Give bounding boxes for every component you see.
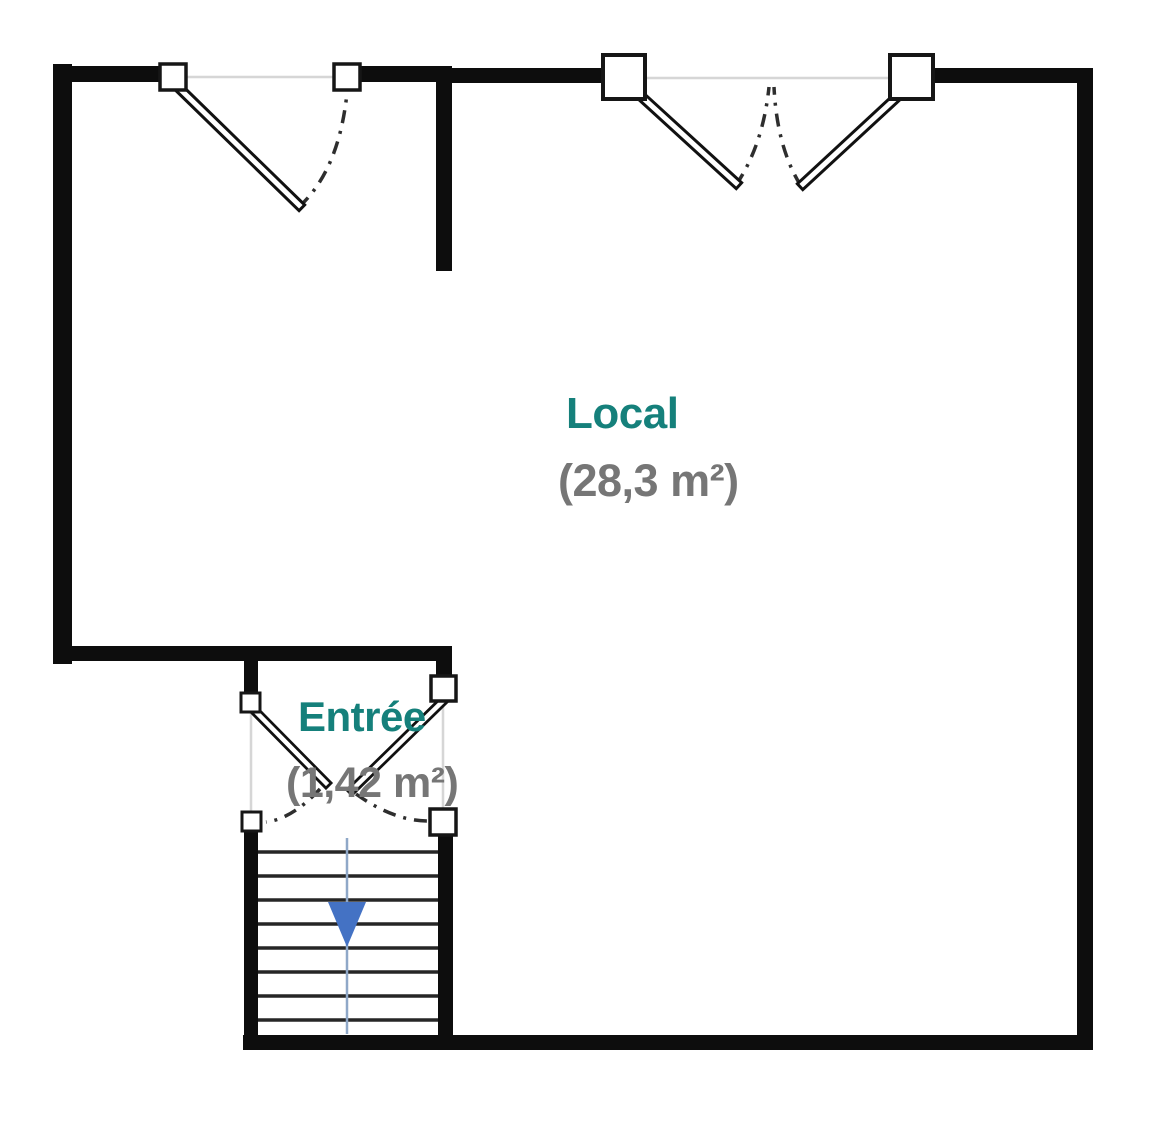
door-hinge-post	[334, 64, 360, 90]
room-name-local: Local	[566, 392, 678, 436]
door-hinge-post	[430, 809, 456, 835]
room-area-local: (28,3 m²)	[558, 458, 739, 503]
door-leaf-single-top-left	[181, 90, 299, 205]
wall-entry-left-stub	[244, 659, 258, 696]
staircase	[258, 838, 438, 1034]
opening-guides	[186, 77, 891, 812]
wall-interior-stub	[436, 68, 452, 271]
wall-bottom	[243, 1035, 1093, 1050]
door-swing-arc	[299, 93, 347, 207]
door-hinge-post	[160, 64, 186, 90]
wall-mid	[53, 646, 452, 661]
wall-top-d	[930, 68, 1093, 83]
door-hinge-post	[890, 55, 933, 99]
wall-top-c	[448, 68, 606, 83]
floor-plan-canvas	[0, 0, 1176, 1140]
wall-left	[53, 64, 72, 664]
wall-stair-left	[244, 828, 258, 1050]
wall-right	[1077, 68, 1093, 1050]
wall-stair-right	[438, 828, 453, 1036]
door-hinge-post	[242, 812, 261, 831]
door-hinge-post	[603, 55, 645, 99]
wall-top-a	[53, 66, 165, 82]
walls	[53, 64, 1093, 1050]
door-hinge-post	[431, 676, 456, 701]
door-hinge-post	[241, 693, 260, 712]
door-leaf-double-left	[643, 98, 736, 183]
door-swing-arc	[774, 87, 801, 186]
door-swing-arc	[736, 87, 769, 185]
door-leaf-double-right	[803, 98, 896, 184]
door-leaves	[181, 90, 896, 790]
room-name-entree: Entrée	[298, 696, 426, 738]
floor-plan: Local (28,3 m²) Entrée (1,42 m²)	[0, 0, 1176, 1140]
room-area-entree: (1,42 m²)	[286, 762, 458, 805]
